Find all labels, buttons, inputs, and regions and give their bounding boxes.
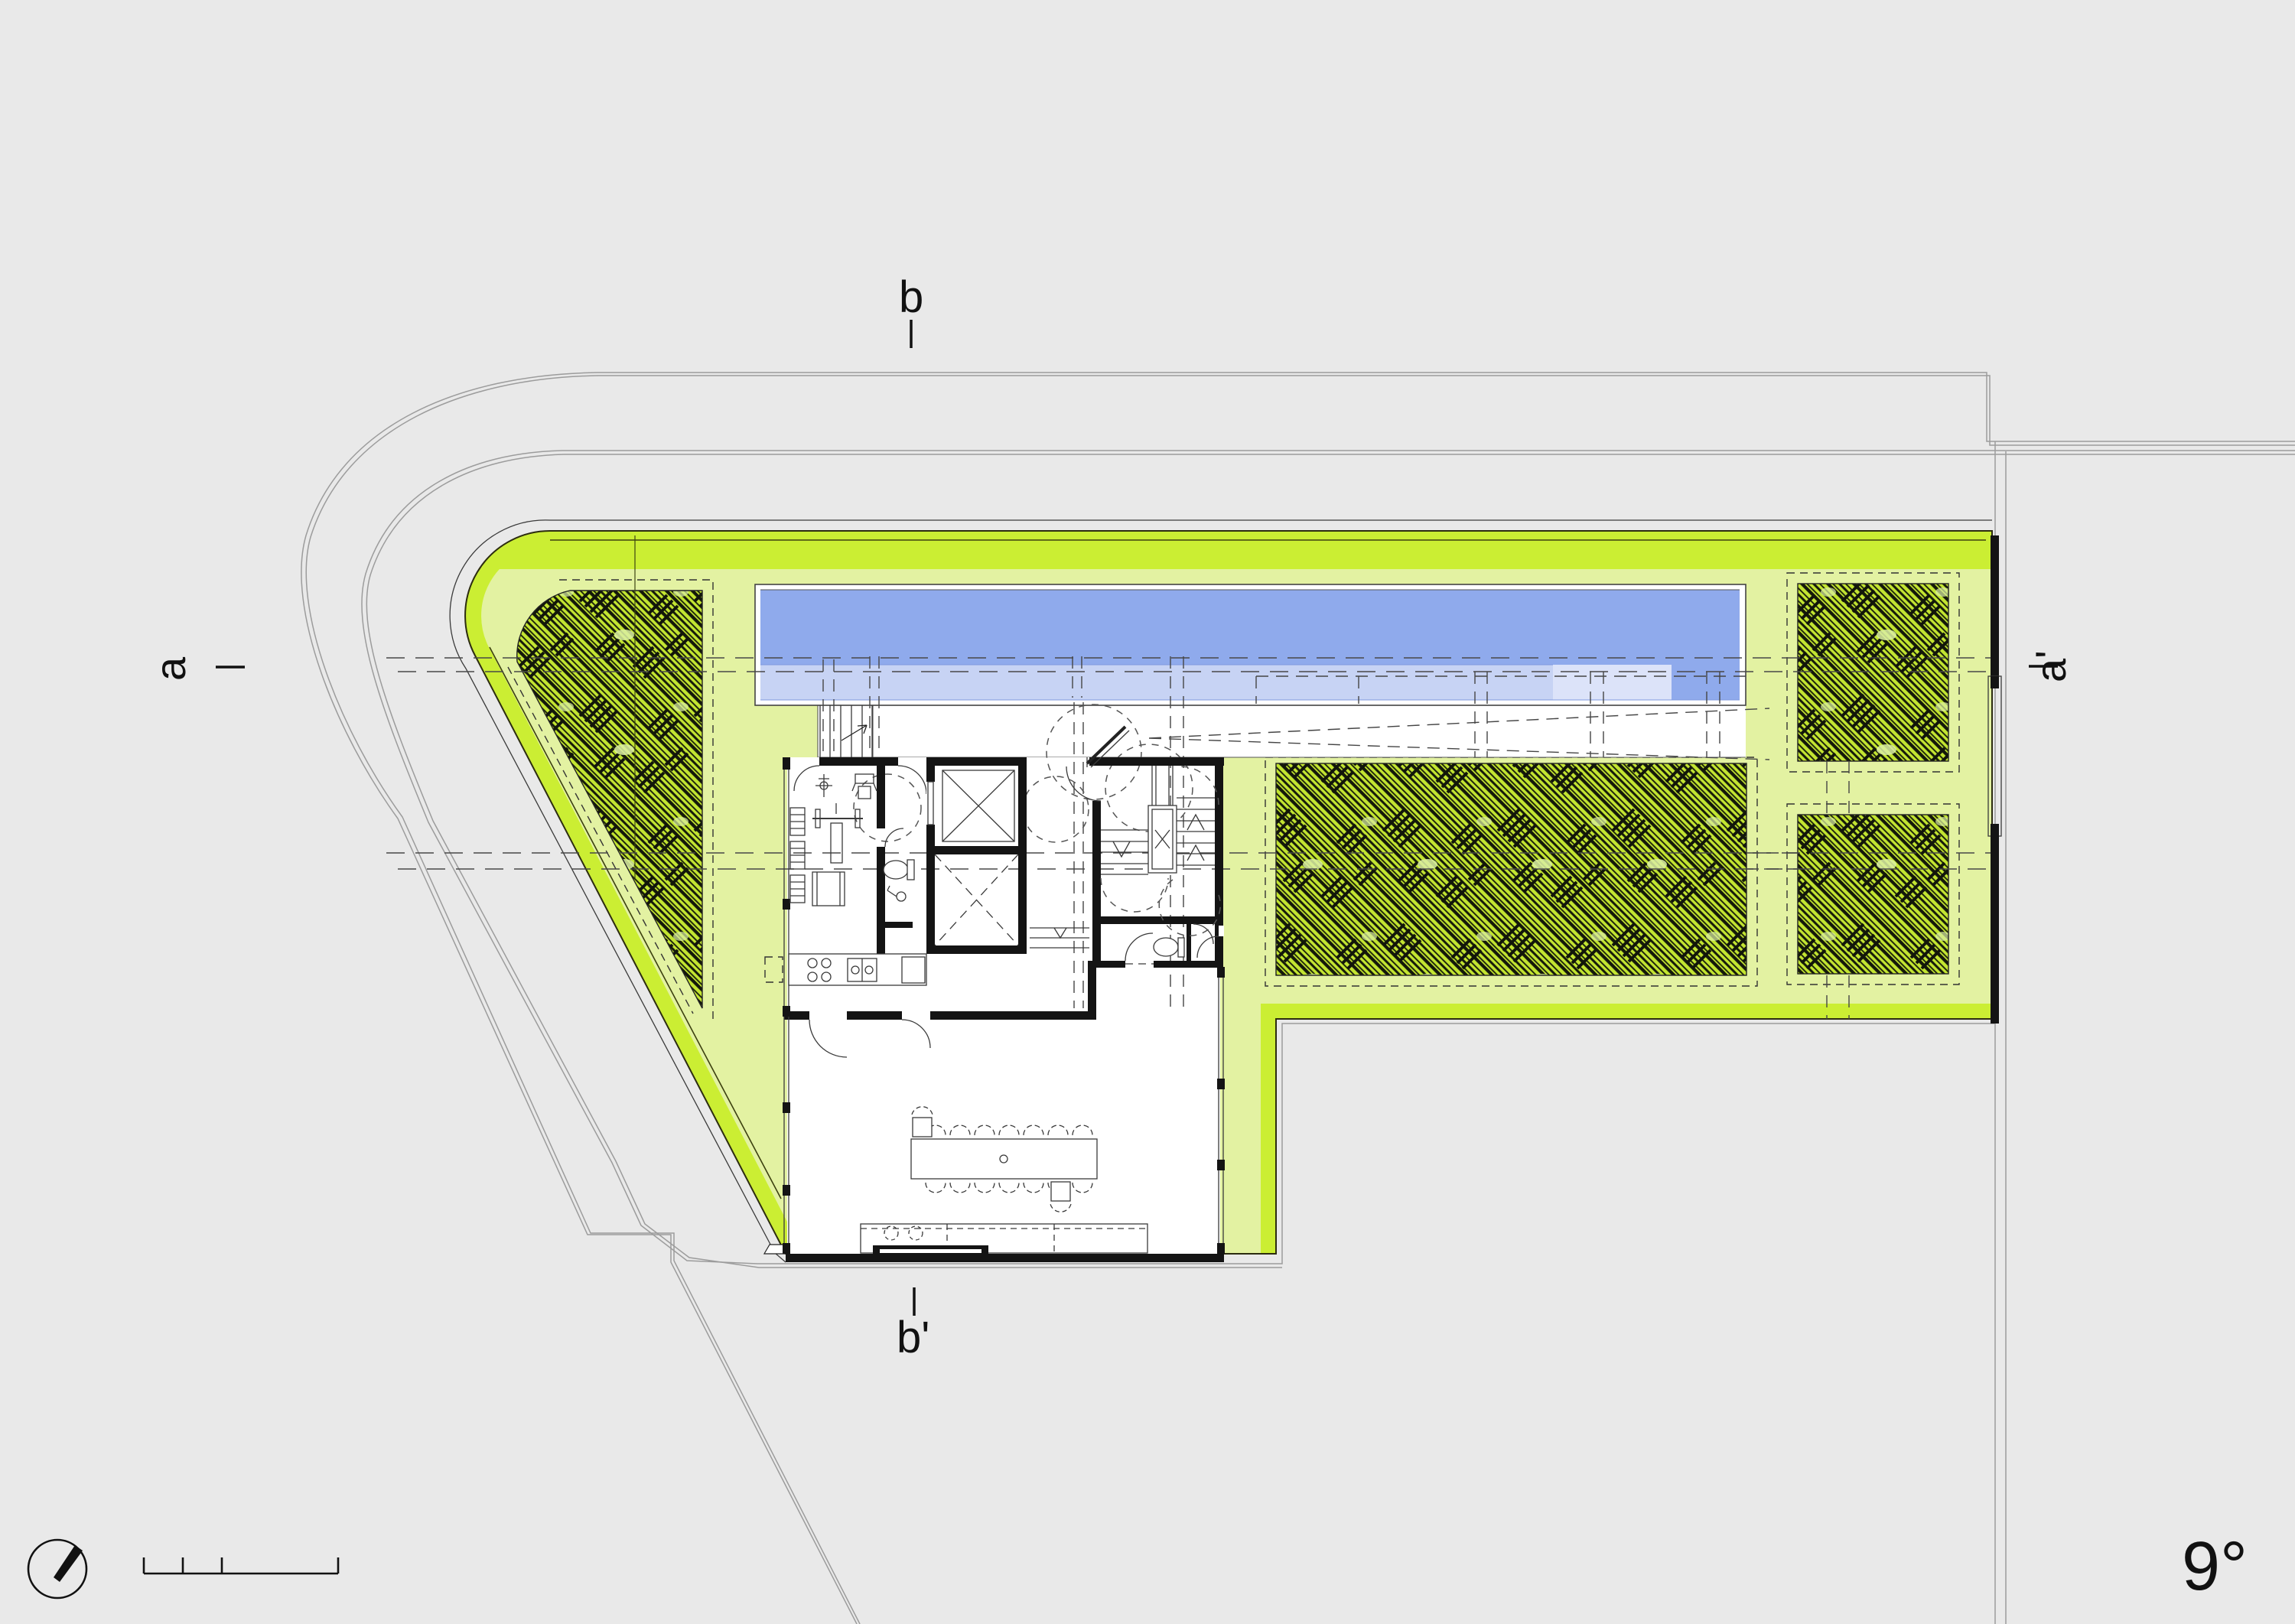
svg-text:a': a'	[2026, 650, 2075, 682]
svg-text:b: b	[899, 272, 923, 322]
svg-text:b': b'	[897, 1313, 929, 1362]
svg-text:9°: 9°	[2182, 1528, 2248, 1605]
svg-text:a: a	[146, 656, 194, 681]
